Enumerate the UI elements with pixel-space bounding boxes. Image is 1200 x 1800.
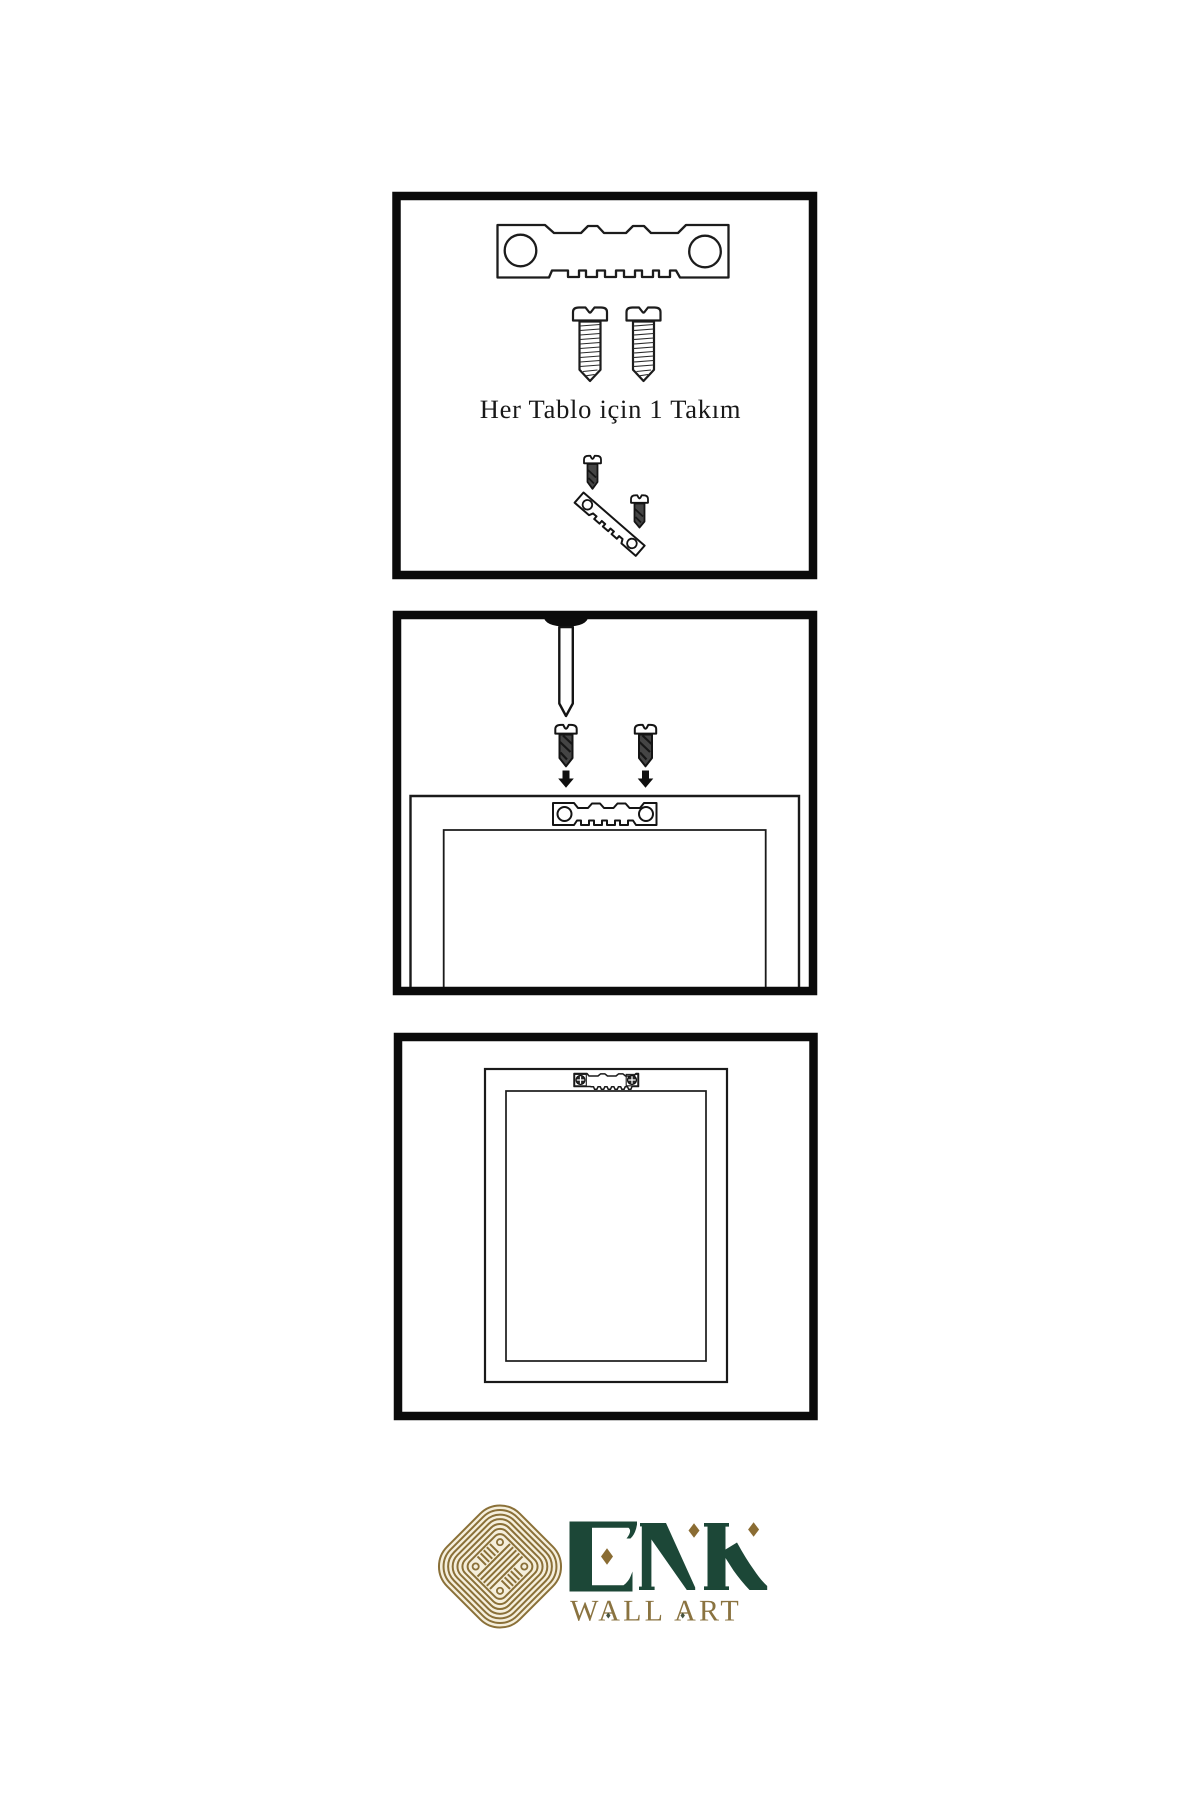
svg-text:WALL ART: WALL ART [570,1595,742,1628]
svg-text:Her Tablo için 1 Takım: Her Tablo için 1 Takım [480,394,741,424]
